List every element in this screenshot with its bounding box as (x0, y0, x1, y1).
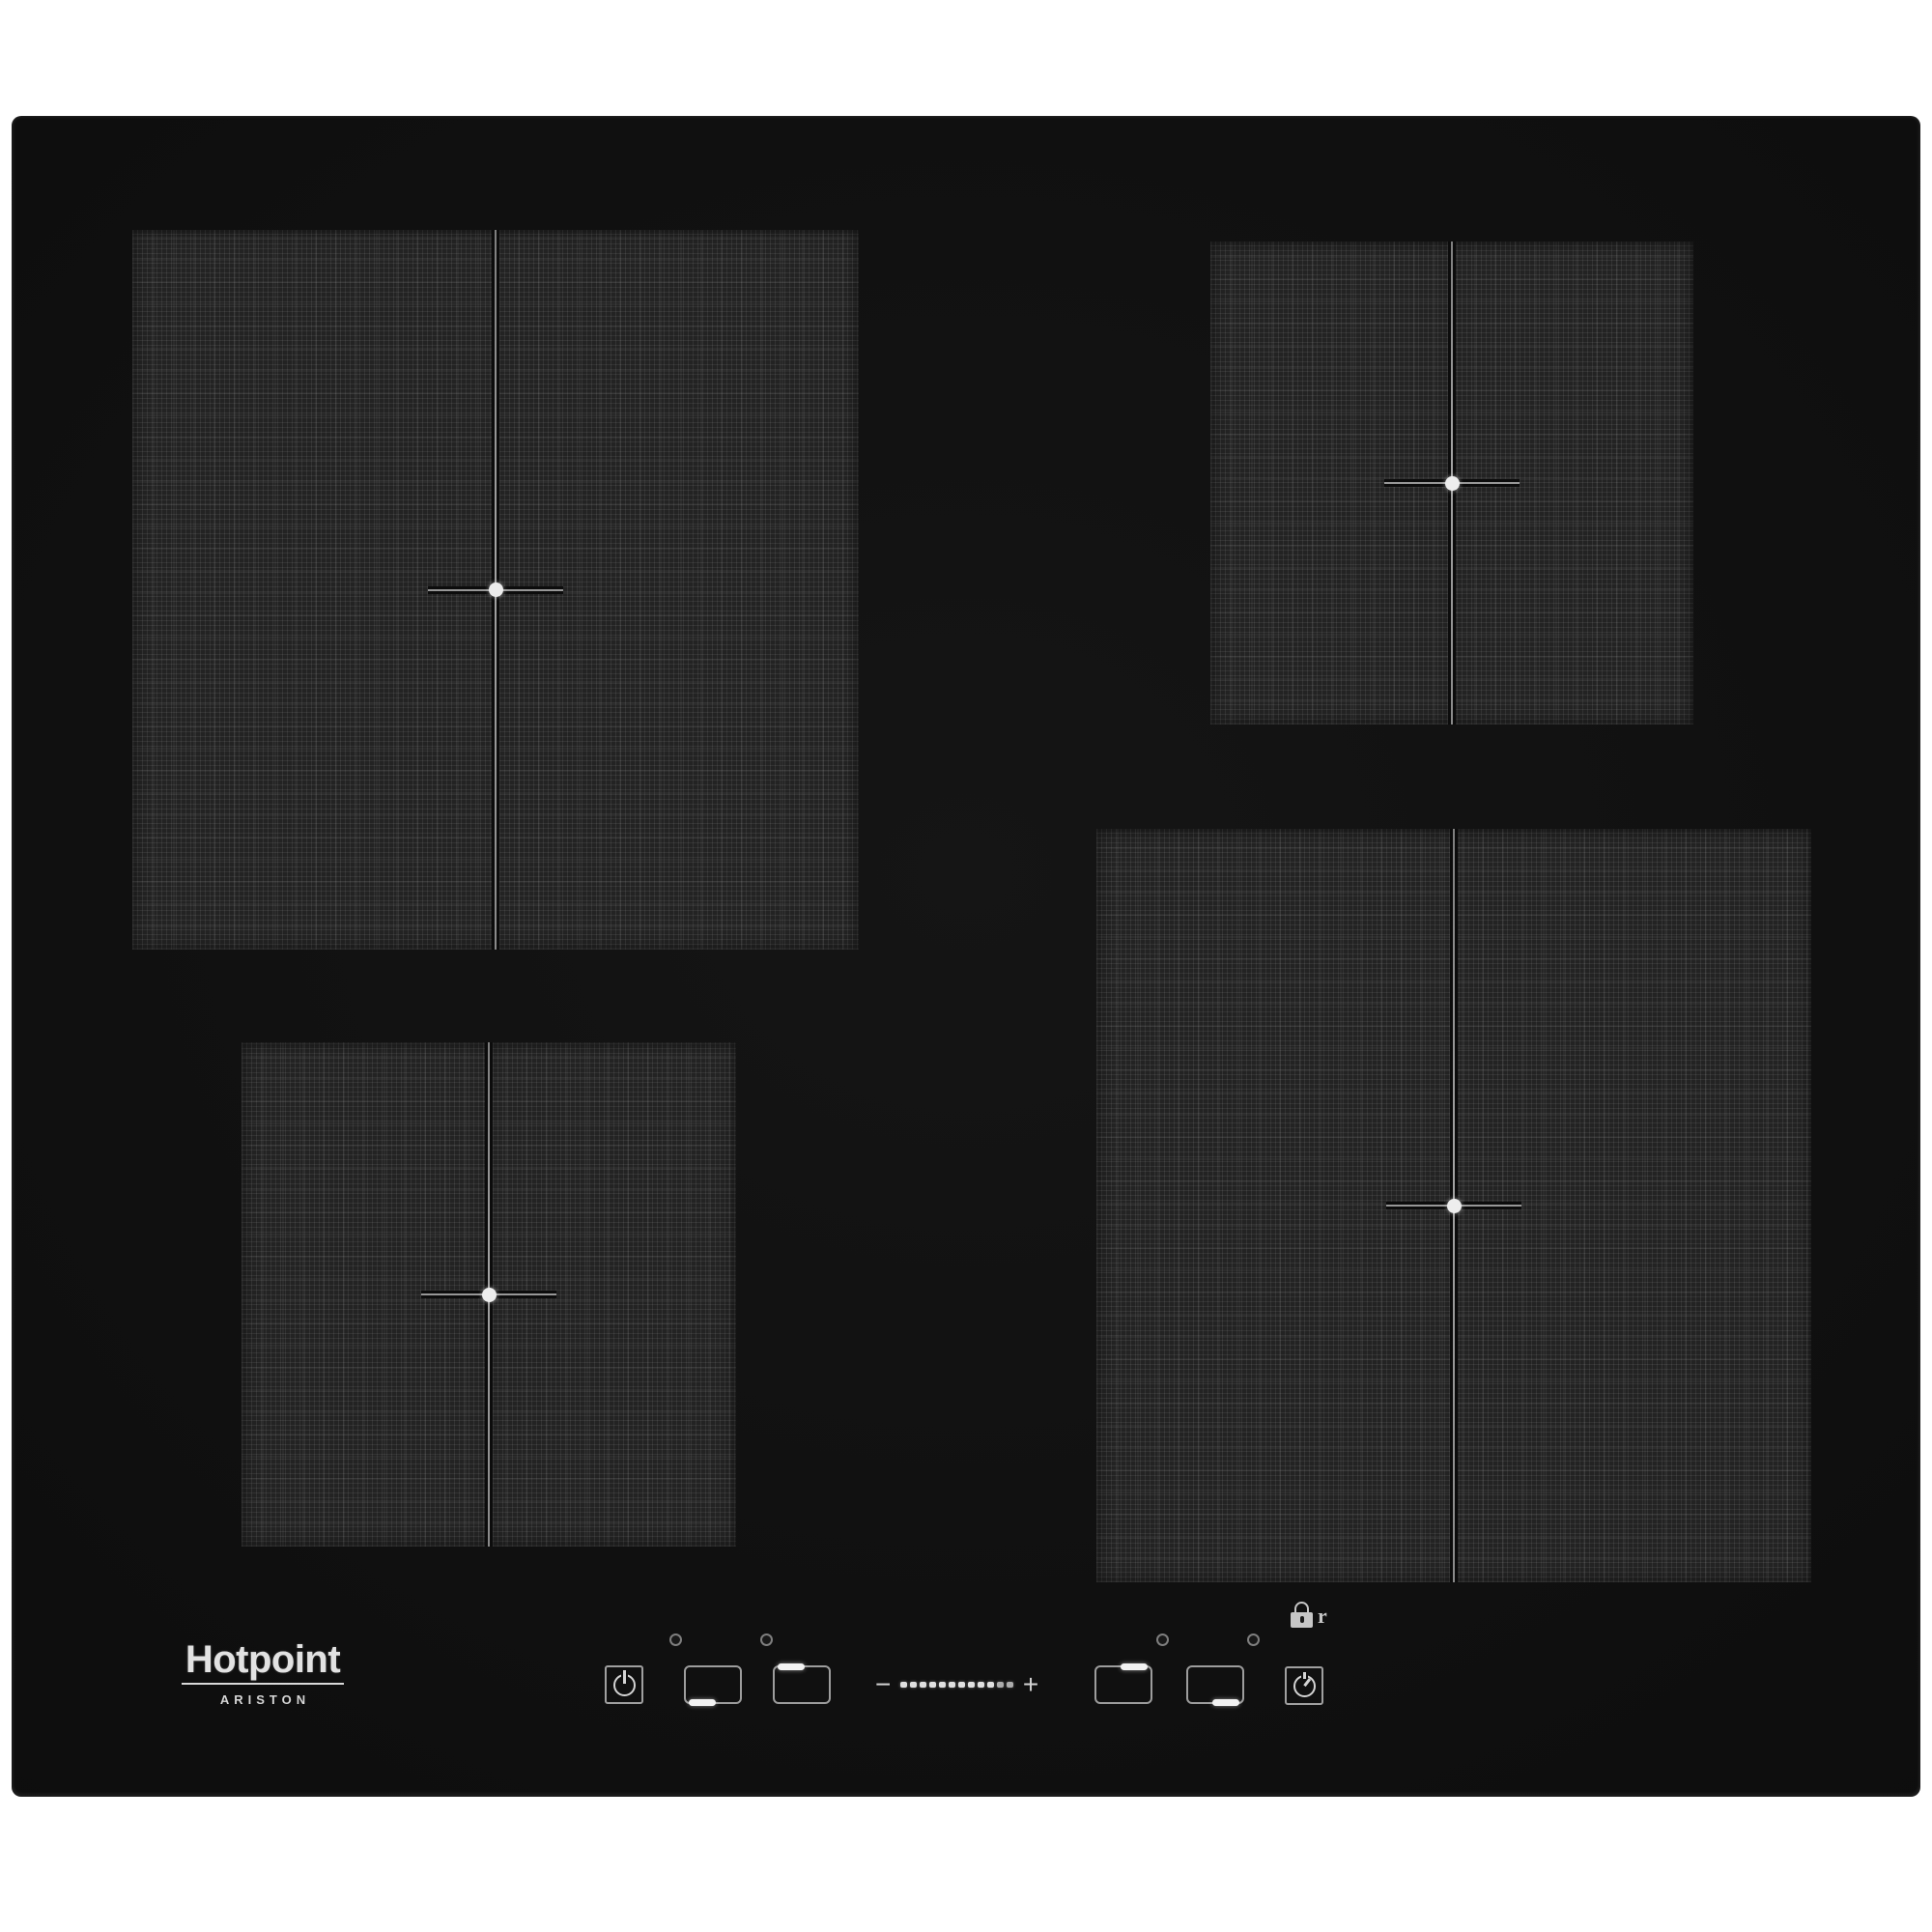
timer-clock-tick (1301, 1672, 1308, 1679)
slider-dot (968, 1682, 975, 1689)
minus-icon[interactable]: − (875, 1671, 891, 1698)
zone-select-top-left-button[interactable] (773, 1665, 831, 1704)
slider-dot (997, 1682, 1004, 1689)
slider-dot (929, 1682, 936, 1689)
zone-select-top-left-icon (778, 1663, 805, 1670)
slider-dots (900, 1682, 1013, 1689)
slider-dot (910, 1682, 917, 1689)
zone-center-dot (482, 1288, 497, 1302)
lock-icon-keyhole (1300, 1616, 1304, 1623)
zone-center-dot (489, 582, 503, 597)
brand-logo: Hotpoint ARISTON (182, 1640, 344, 1707)
timer-button[interactable] (1285, 1666, 1323, 1705)
zone-led-bottom-left (669, 1634, 682, 1646)
slider-dot (987, 1682, 994, 1689)
slider-dot (920, 1682, 926, 1689)
product-photo: Hotpoint ARISTON − + (0, 0, 1932, 1932)
brand-name: Hotpoint (182, 1640, 344, 1679)
lock-label: r (1318, 1605, 1327, 1627)
key-lock-control[interactable]: r (1288, 1602, 1350, 1633)
hob-surface: Hotpoint ARISTON − + (12, 116, 1920, 1797)
zone-select-bottom-right-button[interactable] (1186, 1665, 1244, 1704)
zone-led-bottom-right (1247, 1634, 1260, 1646)
slider-dot (958, 1682, 965, 1689)
zone-led-top-right (1156, 1634, 1169, 1646)
power-button[interactable] (605, 1665, 643, 1704)
zone-led-top-left (760, 1634, 773, 1646)
zone-select-bottom-left-icon (689, 1699, 716, 1706)
power-level-slider[interactable]: − + (875, 1665, 1038, 1704)
cooking-zone-bottom-right (1096, 829, 1811, 1582)
zone-select-top-right-icon (1121, 1663, 1148, 1670)
slider-dot (949, 1682, 955, 1689)
power-icon-bar (621, 1670, 628, 1684)
slider-dot (978, 1682, 984, 1689)
slider-dot (1007, 1682, 1013, 1689)
cooking-zone-top-left (132, 230, 859, 950)
zone-select-top-right-button[interactable] (1094, 1665, 1152, 1704)
zone-select-bottom-right-icon (1212, 1699, 1239, 1706)
slider-dot (900, 1682, 907, 1689)
zone-center-dot (1447, 1199, 1462, 1213)
cooking-zone-bottom-left (241, 1042, 736, 1547)
brand-subname: ARISTON (182, 1692, 344, 1707)
zone-center-dot (1445, 476, 1460, 491)
zone-select-bottom-left-button[interactable] (684, 1665, 742, 1704)
cooking-zone-top-right (1210, 241, 1693, 724)
plus-icon[interactable]: + (1023, 1671, 1038, 1698)
logo-underline (182, 1683, 344, 1685)
slider-dot (939, 1682, 946, 1689)
